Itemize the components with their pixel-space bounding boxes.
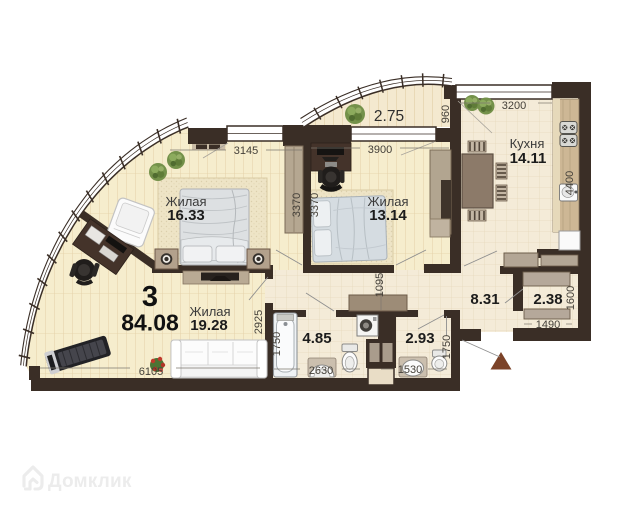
svg-text:Кухня: Кухня — [510, 136, 545, 151]
svg-text:13.14: 13.14 — [369, 207, 407, 224]
svg-text:2.93: 2.93 — [405, 330, 434, 347]
svg-text:1750: 1750 — [441, 335, 453, 359]
svg-text:84.08: 84.08 — [121, 310, 179, 336]
svg-text:Домклик: Домклик — [48, 471, 132, 492]
svg-text:2.38: 2.38 — [533, 291, 562, 308]
svg-text:3900: 3900 — [368, 144, 392, 156]
svg-text:3: 3 — [142, 281, 158, 313]
svg-text:2.75: 2.75 — [374, 108, 404, 125]
svg-text:3145: 3145 — [234, 145, 258, 157]
svg-text:4.85: 4.85 — [302, 330, 331, 347]
svg-text:14.11: 14.11 — [510, 150, 547, 167]
svg-text:1095: 1095 — [374, 273, 386, 297]
svg-text:16.33: 16.33 — [167, 207, 205, 224]
svg-text:1530: 1530 — [398, 364, 422, 376]
svg-text:3370: 3370 — [291, 193, 303, 217]
svg-text:1750: 1750 — [271, 332, 283, 356]
svg-text:6105: 6105 — [139, 366, 163, 378]
svg-text:1600: 1600 — [565, 286, 577, 310]
svg-text:1490: 1490 — [536, 319, 560, 331]
svg-text:2630: 2630 — [309, 365, 333, 377]
svg-text:960: 960 — [440, 105, 452, 123]
svg-text:4400: 4400 — [564, 171, 576, 195]
svg-text:3200: 3200 — [502, 100, 526, 112]
svg-text:3370: 3370 — [309, 193, 321, 217]
svg-text:8.31: 8.31 — [470, 291, 499, 308]
svg-text:2925: 2925 — [253, 310, 265, 334]
svg-text:19.28: 19.28 — [190, 317, 228, 334]
